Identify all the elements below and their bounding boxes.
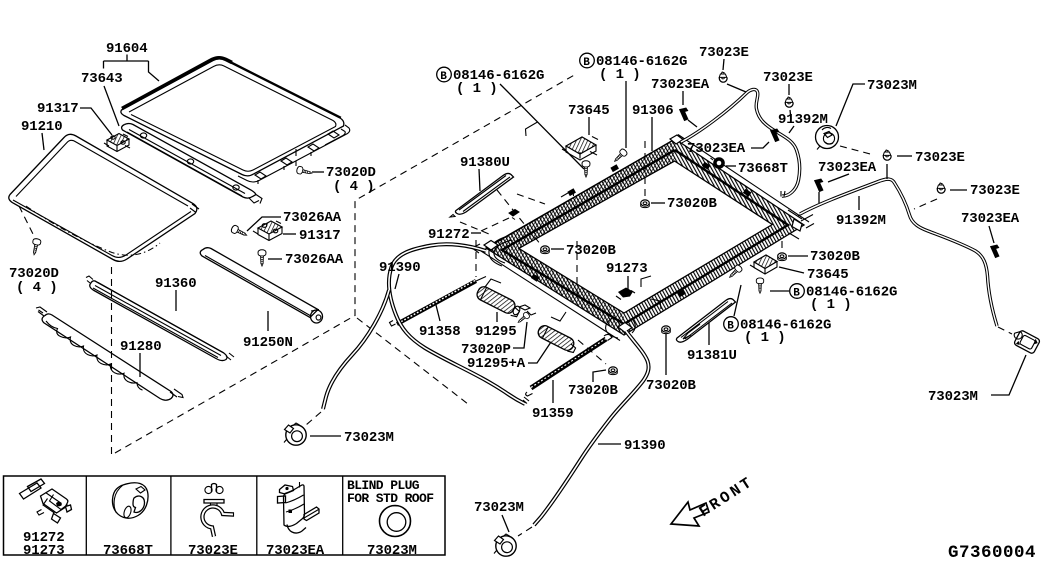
svg-text:73023M: 73023M bbox=[474, 500, 524, 516]
svg-text:73023M: 73023M bbox=[867, 78, 917, 94]
svg-text:73023M: 73023M bbox=[367, 543, 417, 559]
svg-text:91210: 91210 bbox=[21, 119, 63, 135]
svg-text:73020B: 73020B bbox=[667, 196, 718, 212]
svg-text:( 4 ): ( 4 ) bbox=[16, 280, 58, 296]
svg-text:91280: 91280 bbox=[120, 339, 162, 355]
svg-text:B: B bbox=[583, 57, 590, 69]
svg-text:73023EA: 73023EA bbox=[651, 77, 710, 93]
svg-text:73645: 73645 bbox=[568, 103, 610, 119]
svg-text:73023E: 73023E bbox=[699, 45, 749, 61]
svg-text:73023E: 73023E bbox=[915, 150, 965, 166]
svg-text:91317: 91317 bbox=[299, 228, 341, 244]
svg-text:91273: 91273 bbox=[23, 543, 65, 559]
svg-text:73023E: 73023E bbox=[970, 183, 1020, 199]
svg-text:73023E: 73023E bbox=[763, 70, 813, 86]
svg-text:91392M: 91392M bbox=[778, 112, 828, 128]
svg-text:91250N: 91250N bbox=[243, 335, 293, 351]
svg-text:73023EA: 73023EA bbox=[818, 160, 877, 176]
svg-text:B: B bbox=[793, 288, 800, 300]
svg-text:91390: 91390 bbox=[379, 260, 421, 276]
svg-text:73026AA: 73026AA bbox=[283, 210, 342, 226]
svg-text:73020B: 73020B bbox=[568, 383, 619, 399]
svg-text:91392M: 91392M bbox=[836, 213, 886, 229]
svg-text:73026AA: 73026AA bbox=[285, 252, 344, 268]
svg-text:91390: 91390 bbox=[624, 438, 666, 454]
svg-text:91273: 91273 bbox=[606, 261, 648, 277]
svg-text:73023M: 73023M bbox=[928, 389, 978, 405]
svg-text:73023E: 73023E bbox=[188, 543, 238, 559]
svg-text:( 1 ): ( 1 ) bbox=[456, 81, 498, 97]
svg-text:91360: 91360 bbox=[155, 276, 197, 292]
svg-text:73023EA: 73023EA bbox=[266, 543, 325, 559]
svg-text:73645: 73645 bbox=[807, 267, 849, 283]
svg-text:91317: 91317 bbox=[37, 101, 79, 117]
svg-text:91272: 91272 bbox=[428, 227, 470, 243]
svg-text:73020B: 73020B bbox=[646, 378, 697, 394]
svg-text:73020B: 73020B bbox=[810, 249, 861, 265]
svg-text:91295+A: 91295+A bbox=[467, 356, 526, 372]
svg-text:73023EA: 73023EA bbox=[687, 141, 746, 157]
svg-text:91306: 91306 bbox=[632, 103, 674, 119]
svg-text:( 4 ): ( 4 ) bbox=[333, 179, 375, 195]
svg-text:73023EA: 73023EA bbox=[961, 211, 1020, 227]
svg-text:( 1 ): ( 1 ) bbox=[810, 297, 852, 313]
svg-text:91295: 91295 bbox=[475, 324, 517, 340]
svg-text:( 1 ): ( 1 ) bbox=[744, 330, 786, 346]
svg-text:FOR STD ROOF: FOR STD ROOF bbox=[347, 491, 434, 506]
svg-text:( 1 ): ( 1 ) bbox=[599, 67, 641, 83]
svg-text:73668T: 73668T bbox=[738, 161, 788, 177]
svg-text:73643: 73643 bbox=[81, 71, 123, 87]
svg-text:91358: 91358 bbox=[419, 324, 461, 340]
svg-text:B: B bbox=[727, 321, 734, 333]
svg-text:B: B bbox=[440, 71, 447, 83]
svg-text:73023M: 73023M bbox=[344, 430, 394, 446]
svg-text:91359: 91359 bbox=[532, 406, 574, 422]
svg-text:G7360004: G7360004 bbox=[948, 543, 1036, 563]
svg-text:73668T: 73668T bbox=[103, 543, 153, 559]
svg-text:91381U: 91381U bbox=[687, 348, 737, 364]
svg-text:73020B: 73020B bbox=[566, 243, 617, 259]
svg-text:91380U: 91380U bbox=[460, 155, 510, 171]
